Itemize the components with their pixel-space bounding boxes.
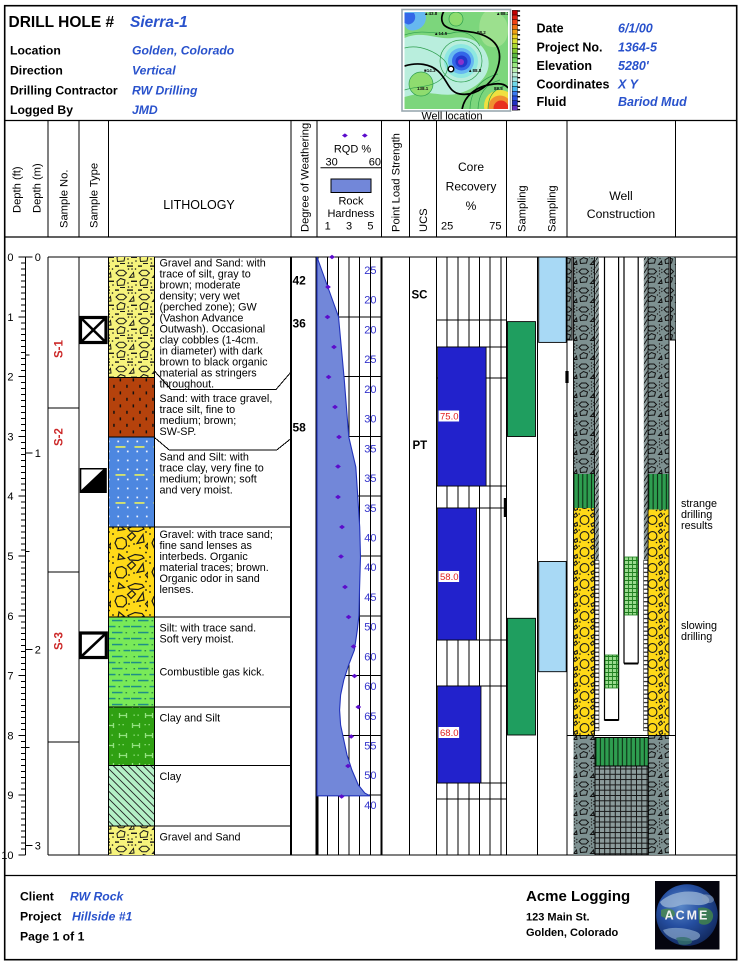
svg-text:9: 9: [7, 790, 13, 802]
svg-text:Fluid: Fluid: [537, 95, 567, 109]
svg-text:results: results: [681, 520, 713, 532]
svg-text:Sampling: Sampling: [517, 185, 529, 232]
svg-text:UCS: UCS: [418, 208, 430, 232]
svg-text:Well location: Well location: [421, 110, 482, 122]
svg-text:1: 1: [35, 448, 41, 460]
svg-text:30: 30: [326, 157, 338, 169]
svg-text:PT: PT: [413, 440, 428, 452]
svg-text:45: 45: [364, 592, 376, 604]
svg-text:Acme Logging: Acme Logging: [526, 888, 630, 905]
svg-text:Sierra-1: Sierra-1: [130, 14, 188, 31]
svg-text:Well: Well: [609, 189, 632, 203]
svg-text:Direction: Direction: [10, 64, 63, 78]
svg-text:■14.3: ■14.3: [424, 68, 436, 73]
svg-text:RQD %: RQD %: [334, 144, 372, 156]
svg-text:75: 75: [489, 221, 501, 233]
svg-text:35: 35: [364, 443, 376, 455]
svg-text:50: 50: [364, 770, 376, 782]
svg-text:Project: Project: [20, 910, 61, 924]
svg-text:S-1: S-1: [54, 340, 66, 359]
svg-text:123 Main St.: 123 Main St.: [526, 912, 590, 924]
svg-text:X Y: X Y: [617, 77, 640, 91]
svg-text:Depth (m): Depth (m): [32, 163, 44, 213]
svg-text:25: 25: [364, 354, 376, 366]
svg-text:Logged By: Logged By: [10, 103, 73, 117]
svg-text:lenses.: lenses.: [160, 584, 194, 596]
svg-text:5: 5: [7, 551, 13, 563]
svg-text:Elevation: Elevation: [537, 59, 593, 73]
svg-text:ACME: ACME: [665, 909, 710, 923]
svg-text:6/1/00: 6/1/00: [618, 21, 653, 35]
svg-text:68.0: 68.0: [440, 728, 459, 739]
svg-text:SW-SP.: SW-SP.: [160, 426, 197, 438]
svg-text:25: 25: [441, 221, 453, 233]
svg-text:Hardness: Hardness: [327, 208, 375, 220]
svg-text:Degree of Weathering: Degree of Weathering: [300, 123, 312, 232]
svg-text:65: 65: [364, 711, 376, 723]
svg-text:Drilling Contractor: Drilling Contractor: [10, 84, 118, 98]
svg-text:60: 60: [364, 681, 376, 693]
svg-text:DRILL HOLE #: DRILL HOLE #: [9, 14, 115, 31]
svg-text:4: 4: [7, 491, 13, 503]
svg-text:Sampling: Sampling: [547, 185, 559, 232]
svg-text:98.2: 98.2: [477, 30, 486, 35]
svg-text:25: 25: [364, 265, 376, 277]
svg-text:2: 2: [35, 644, 41, 656]
svg-text:60: 60: [364, 651, 376, 663]
svg-text:Page 1 of 1: Page 1 of 1: [20, 930, 85, 944]
svg-text:S-2: S-2: [54, 428, 66, 446]
svg-text:42: 42: [293, 274, 307, 288]
svg-text:Point Load Strength: Point Load Strength: [391, 133, 403, 232]
svg-text:20: 20: [364, 384, 376, 396]
svg-text:Golden, Colorado: Golden, Colorado: [526, 927, 619, 939]
svg-text:SC: SC: [412, 290, 428, 302]
svg-text:58: 58: [293, 421, 307, 435]
svg-text:Recovery: Recovery: [446, 180, 497, 194]
svg-text:20: 20: [364, 324, 376, 336]
svg-text:Coordinates: Coordinates: [537, 77, 610, 91]
svg-text:Location: Location: [10, 44, 61, 58]
svg-text:3: 3: [7, 431, 13, 443]
svg-text:▲14.5: ▲14.5: [434, 31, 448, 36]
svg-text:S-3: S-3: [54, 632, 66, 650]
svg-text:%: %: [466, 199, 477, 213]
svg-text:Project No.: Project No.: [537, 41, 603, 55]
svg-text:Gravel and Sand: Gravel and Sand: [160, 832, 241, 844]
svg-text:5: 5: [367, 221, 373, 233]
svg-text:1: 1: [7, 312, 13, 324]
svg-text:and very moist.: and very moist.: [160, 485, 233, 497]
svg-text:Golden, Colorado: Golden, Colorado: [132, 44, 235, 58]
svg-text:40: 40: [364, 562, 376, 574]
svg-text:Depth (ft): Depth (ft): [12, 166, 24, 213]
svg-text:Date: Date: [537, 21, 564, 35]
svg-text:40: 40: [364, 533, 376, 545]
svg-text:Client: Client: [20, 890, 54, 904]
svg-text:138.1: 138.1: [417, 86, 429, 91]
svg-text:drilling: drilling: [681, 631, 712, 643]
svg-text:5280': 5280': [618, 59, 650, 73]
svg-text:55: 55: [364, 741, 376, 753]
svg-text:20: 20: [364, 295, 376, 307]
svg-text:88.8: 88.8: [494, 86, 503, 91]
svg-text:▲88.8: ▲88.8: [468, 68, 482, 73]
svg-text:60: 60: [369, 157, 381, 169]
svg-text:1364-5: 1364-5: [618, 41, 658, 55]
svg-text:3: 3: [346, 221, 352, 233]
svg-text:30: 30: [364, 414, 376, 426]
svg-text:Bariod Mud: Bariod Mud: [618, 95, 687, 109]
svg-text:throughout.: throughout.: [160, 379, 215, 391]
svg-text:10: 10: [1, 850, 13, 862]
svg-text:0: 0: [35, 252, 41, 264]
svg-text:58.0: 58.0: [440, 572, 459, 583]
svg-text:75.0: 75.0: [440, 412, 459, 423]
svg-text:Vertical: Vertical: [132, 64, 176, 78]
svg-text:50: 50: [364, 622, 376, 634]
svg-text:Rock: Rock: [338, 196, 364, 208]
svg-text:LITHOLOGY: LITHOLOGY: [163, 198, 235, 212]
svg-text:Combustible gas kick.: Combustible gas kick.: [160, 667, 265, 679]
svg-text:8: 8: [7, 730, 13, 742]
svg-text:35: 35: [364, 473, 376, 485]
svg-text:40: 40: [364, 800, 376, 812]
svg-text:Clay: Clay: [160, 771, 182, 783]
svg-text:RW Drilling: RW Drilling: [132, 84, 198, 98]
svg-text:0: 0: [7, 252, 13, 264]
svg-text:1: 1: [325, 221, 331, 233]
svg-text:Clay and Silt: Clay and Silt: [160, 713, 221, 725]
svg-text:Soft very moist.: Soft very moist.: [160, 634, 234, 646]
svg-text:Sample Type: Sample Type: [89, 163, 101, 228]
svg-text:Core: Core: [458, 160, 484, 174]
svg-text:3: 3: [35, 841, 41, 853]
svg-text:RW Rock: RW Rock: [70, 890, 124, 904]
svg-text:36: 36: [293, 317, 307, 331]
svg-text:6: 6: [7, 611, 13, 623]
svg-text:7: 7: [7, 671, 13, 683]
svg-text:35: 35: [364, 503, 376, 515]
svg-text:Construction: Construction: [587, 207, 655, 221]
svg-text:2: 2: [7, 372, 13, 384]
svg-text:Hillside #1: Hillside #1: [72, 910, 133, 924]
svg-text:JMD: JMD: [132, 103, 158, 117]
svg-text:Sample No.: Sample No.: [59, 170, 71, 228]
